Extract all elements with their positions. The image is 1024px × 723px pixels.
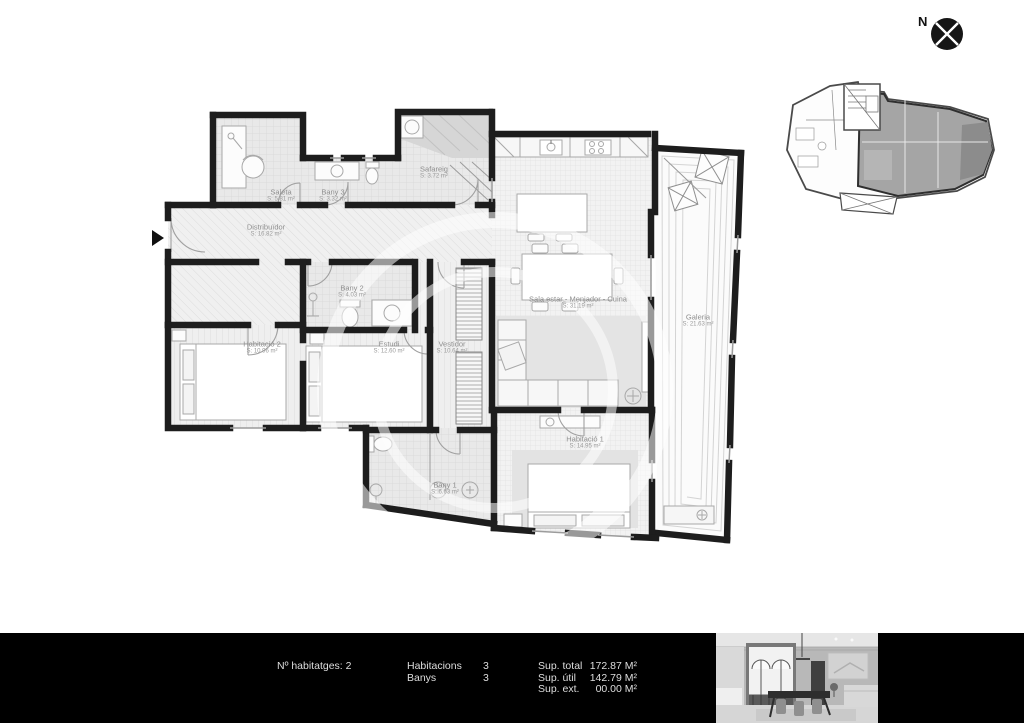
footer-areas: Sup. total172.87 M² Sup. útil142.79 M² S…	[538, 661, 637, 696]
floor-plan-drawing: N	[0, 0, 1024, 723]
stat-label: Banys	[407, 673, 483, 685]
dining-table-photo	[768, 691, 830, 698]
units-count-label: Nº habitatges: 2	[277, 661, 351, 673]
area-value: 00.00 M²	[585, 684, 637, 696]
kitchen-hob	[585, 140, 611, 155]
footer-stats: Habitacions3 Banys3	[407, 661, 489, 684]
area-label: Sup. total	[538, 661, 585, 673]
wall-art	[828, 653, 868, 679]
area-label: Sup. ext.	[538, 684, 585, 696]
area-row-total: Sup. total172.87 M²	[538, 661, 637, 673]
tall-cabinet	[811, 661, 825, 705]
floor-plan-sheet: N Saleta S: 5.81 m² Bany 3 S: 3.32 m² Sa…	[0, 0, 1024, 723]
entrance-arrow-icon	[152, 230, 164, 246]
saleta-chair	[242, 156, 264, 178]
stat-row-banys: Banys3	[407, 673, 489, 685]
kitchen-counter	[494, 137, 648, 157]
stat-value: 3	[483, 660, 489, 672]
stat-value: 3	[483, 672, 489, 684]
north-compass: N	[918, 14, 963, 50]
bany3-toilet	[366, 168, 378, 184]
corridor-ext-floor	[168, 262, 300, 325]
interior-photo	[716, 633, 878, 723]
area-row-ext: Sup. ext.00.00 M²	[538, 684, 637, 696]
footer-bar: Nº habitatges: 2 Habitacions3 Banys3 Sup…	[0, 633, 1024, 723]
site-plan-minimap	[787, 82, 994, 214]
stat-row-habitacions: Habitacions3	[407, 661, 489, 673]
area-value: 172.87 M²	[585, 661, 637, 673]
sofa	[844, 685, 878, 707]
vestidor-closet-2	[456, 352, 482, 424]
north-label: N	[918, 14, 927, 29]
stat-label: Habitacions	[407, 661, 483, 673]
